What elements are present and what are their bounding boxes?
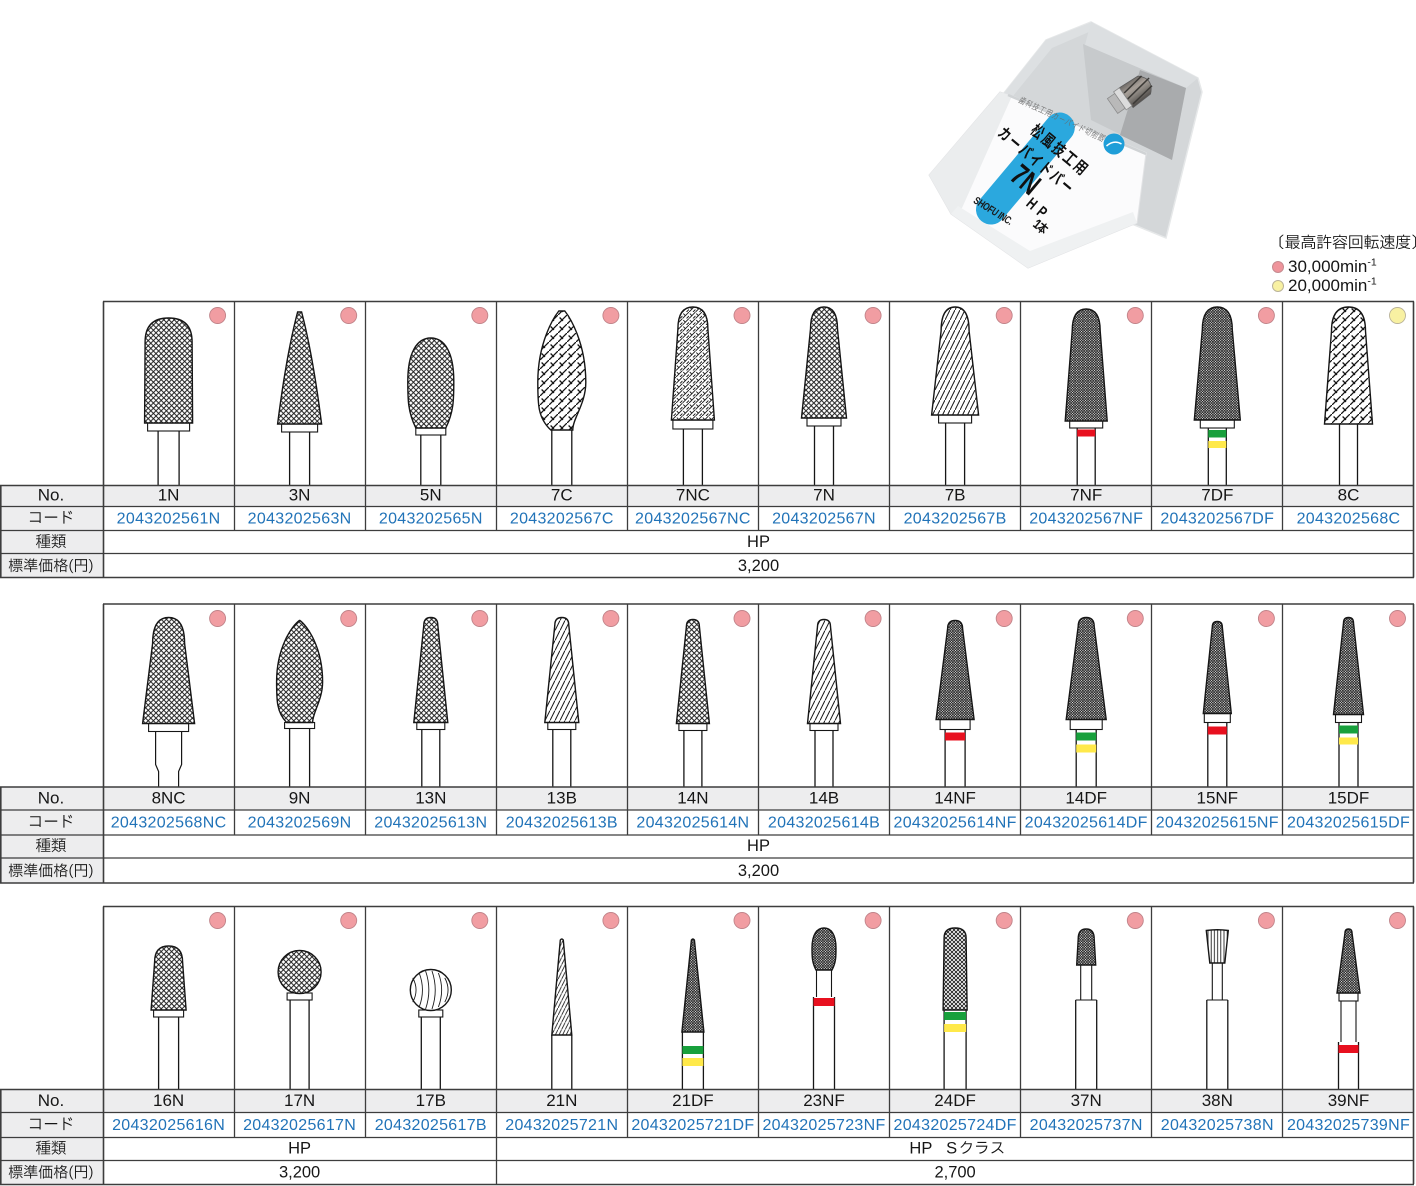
svg-text:HP: HP bbox=[288, 1140, 311, 1158]
svg-text:No.: No. bbox=[38, 1091, 64, 1110]
svg-text:HP S: HP S bbox=[909, 1140, 957, 1158]
svg-text:HP: HP bbox=[747, 837, 770, 855]
svg-text:2043202568NC2043202569N2043202: 2043202568NC2043202569N20432025613N20432… bbox=[111, 814, 1410, 831]
svg-text:HP: HP bbox=[747, 533, 770, 551]
svg-text:3,200: 3,200 bbox=[738, 862, 779, 880]
svg-text:20432025616N20432025617N204320: 20432025616N20432025617N20432025617B2043… bbox=[112, 1117, 1410, 1134]
svg-text:No.: No. bbox=[38, 486, 64, 505]
svg-text:2,700: 2,700 bbox=[934, 1164, 975, 1182]
svg-text:3,200: 3,200 bbox=[279, 1164, 320, 1182]
svg-text:3,200: 3,200 bbox=[738, 557, 779, 575]
svg-text:No.: No. bbox=[38, 788, 64, 807]
